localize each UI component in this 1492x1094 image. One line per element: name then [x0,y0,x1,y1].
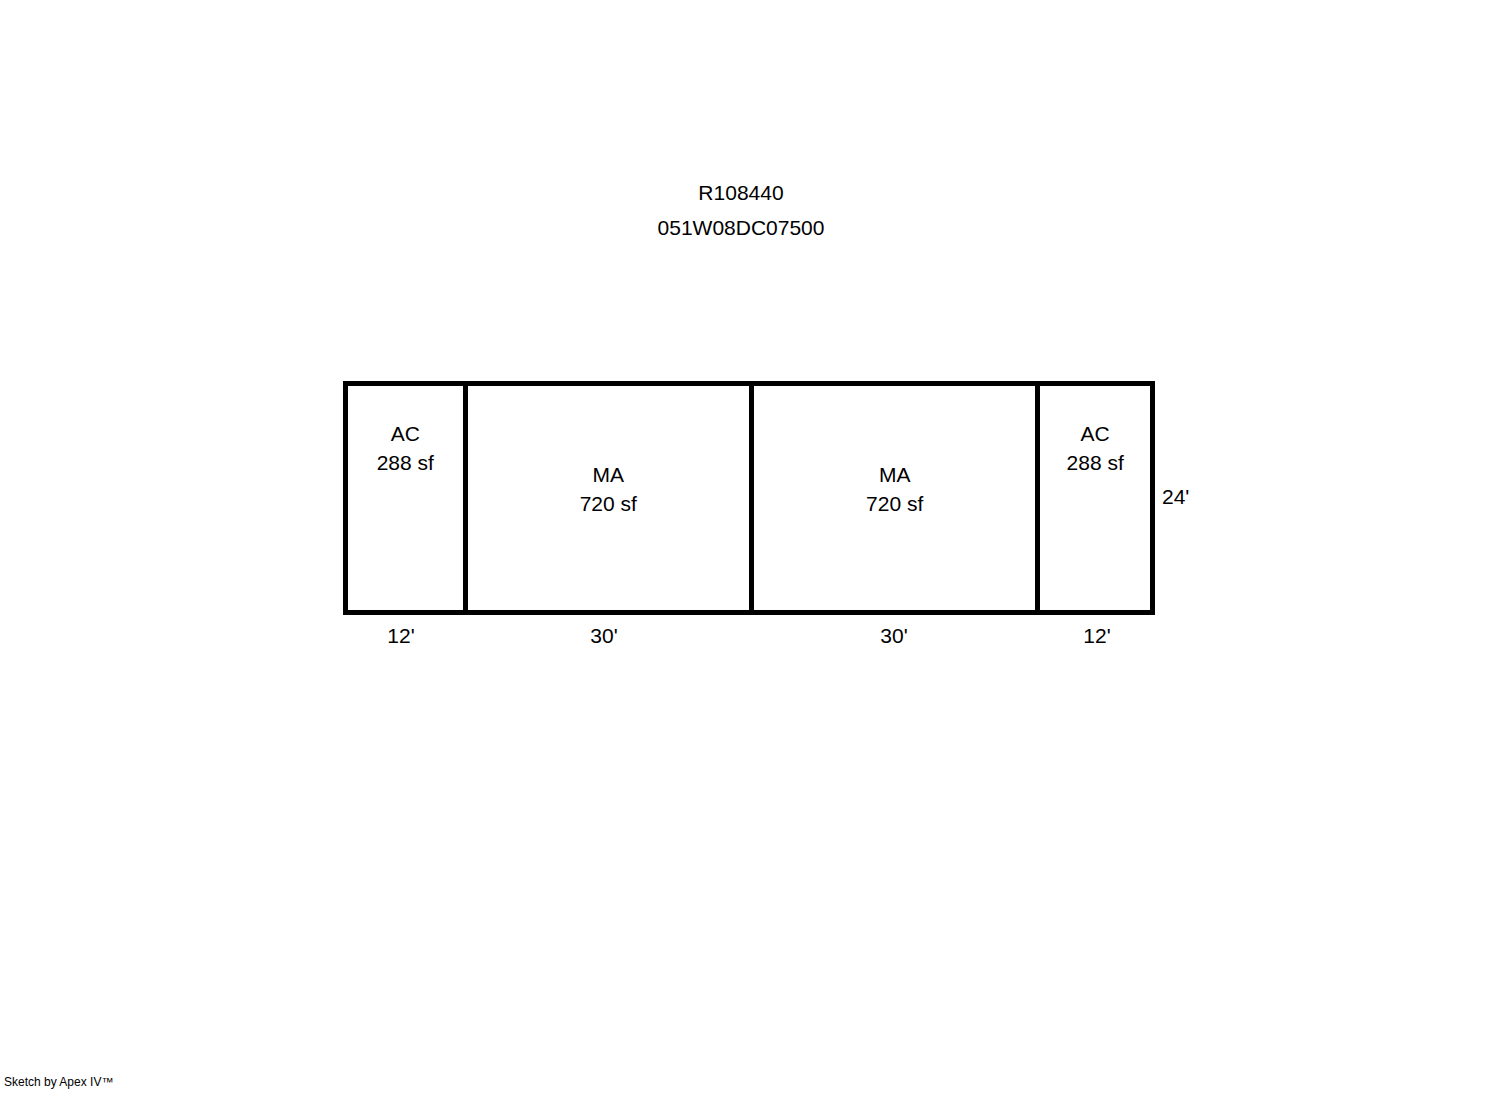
width-dimension-label: 12' [1039,621,1155,650]
section-code-label: AC [1040,419,1150,448]
width-dimension-label: 30' [459,621,749,650]
width-dimension-label: 30' [749,621,1039,650]
section-area-label: 288 sf [348,448,463,477]
parcel-number: 051W08DC07500 [658,210,825,245]
section-code-label: MA [468,460,749,489]
section-cell-ma-left: MA 720 sf [463,386,749,610]
header: R108440 051W08DC07500 [658,175,825,245]
section-area-label: 288 sf [1040,448,1150,477]
section-cell-ac-right: AC 288 sf [1035,386,1150,610]
height-dimension-label: 24' [1162,482,1189,511]
property-id: R108440 [658,175,825,210]
section-area-label: 720 sf [468,489,749,518]
building-sketch-outline: AC 288 sf MA 720 sf MA 720 sf AC 288 sf [343,381,1155,615]
sketch-page: R108440 051W08DC07500 AC 288 sf MA 720 s… [0,0,1492,1094]
width-dimension-row: 12' 30' 30' 12' [343,621,1155,650]
section-code-label: AC [348,419,463,448]
section-code-label: MA [754,460,1035,489]
section-cell-ac-left: AC 288 sf [348,386,463,610]
section-area-label: 720 sf [754,489,1035,518]
width-dimension-label: 12' [343,621,459,650]
footer-credit: Sketch by Apex IV™ [4,1075,113,1089]
section-cell-ma-right: MA 720 sf [749,386,1035,610]
